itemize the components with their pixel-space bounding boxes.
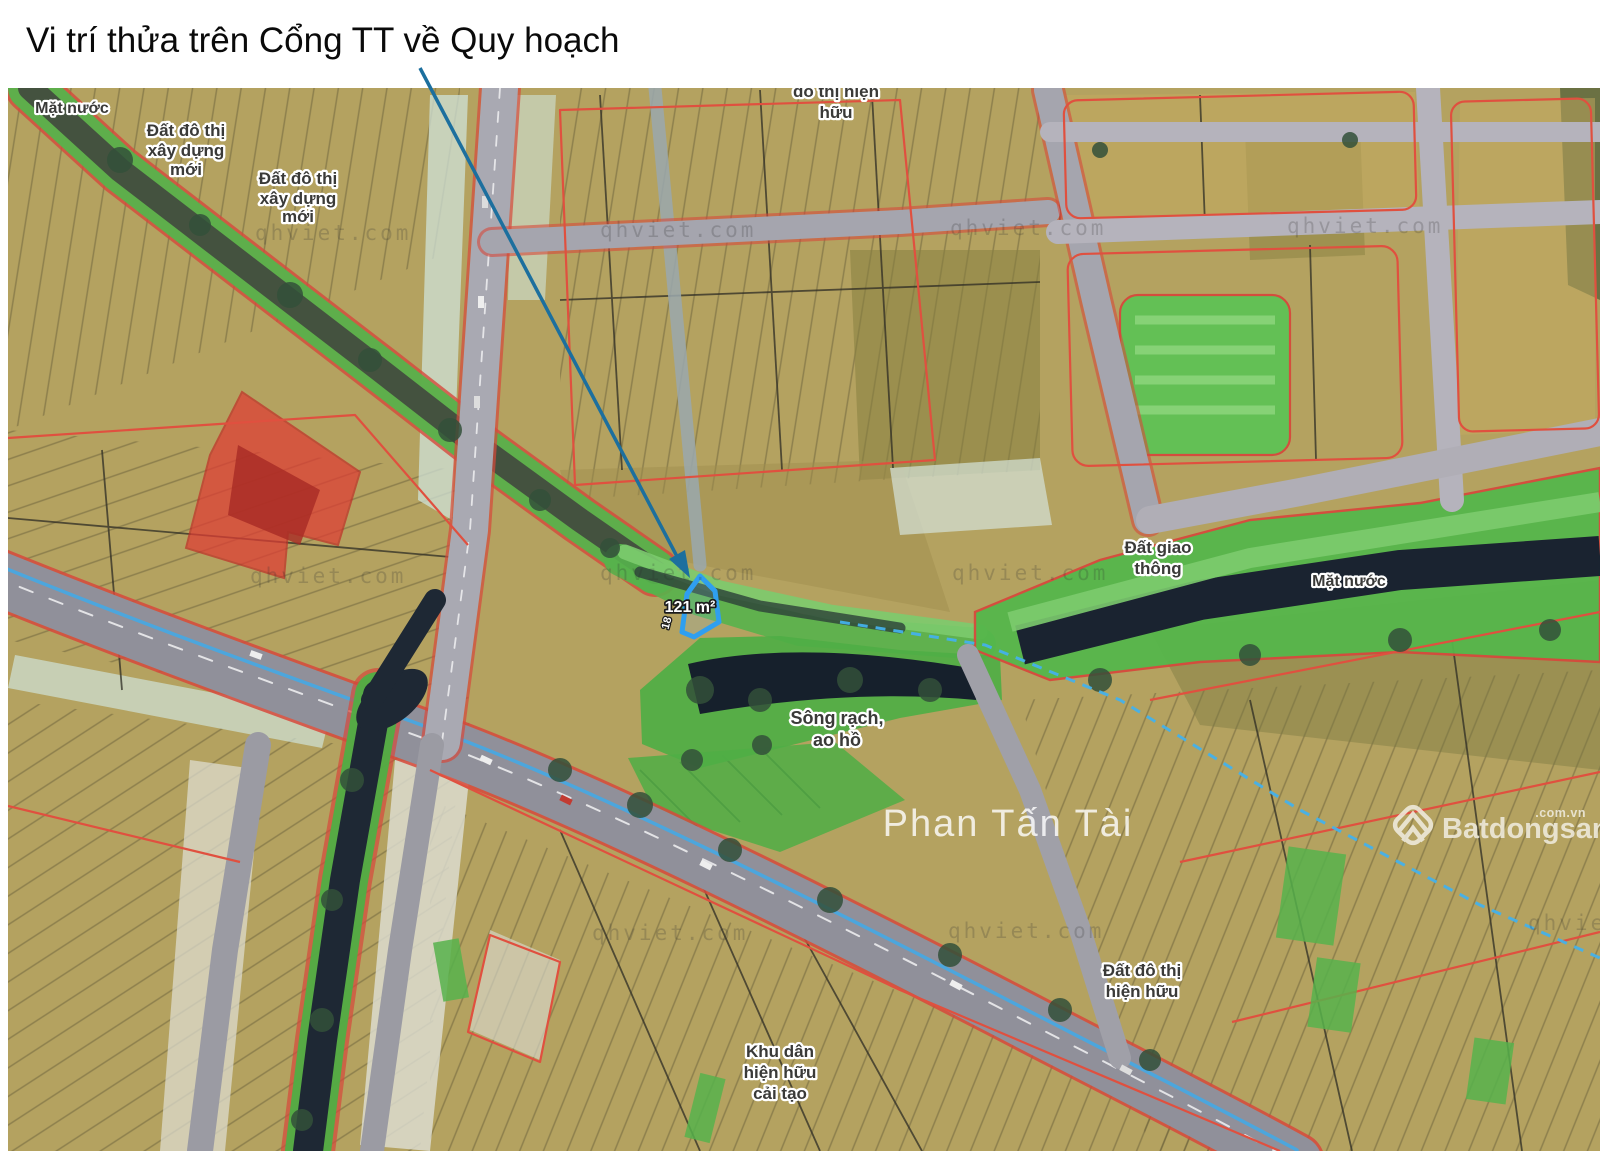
svg-text:qhviet.com: qhviet.com [1528, 911, 1600, 935]
brand-suffix: .com.vn [1535, 806, 1586, 820]
planning-map-screenshot: Vi trí thửa trên Cổng TT về Quy hoạch [0, 0, 1600, 1151]
label-mat-nuoc-right: Mặt nước [1312, 573, 1386, 590]
street-name-label: Phan Tấn Tài [883, 803, 1134, 845]
svg-text:qhviet.com: qhviet.com [250, 564, 406, 588]
park-block [1120, 295, 1290, 455]
svg-text:Đất đô thị: Đất đô thị [1103, 961, 1181, 980]
svg-text:xây dựng: xây dựng [148, 141, 225, 160]
svg-text:qhviet.com: qhviet.com [948, 919, 1104, 943]
svg-text:Khu dân: Khu dân [746, 1042, 814, 1061]
svg-text:mới: mới [170, 160, 202, 179]
page-title: Vi trí thửa trên Cổng TT về Quy hoạch [26, 21, 619, 60]
map-canvas[interactable]: 121 m² 18 Mặt nước Đất đô thị xây dựng m… [0, 82, 1600, 1151]
svg-text:qhviet.com: qhviet.com [952, 561, 1108, 585]
svg-text:hiện hữu: hiện hữu [1106, 982, 1179, 1001]
svg-text:qhviet.com: qhviet.com [255, 221, 411, 245]
svg-text:cải tạo: cải tạo [753, 1084, 807, 1103]
svg-text:xây dựng: xây dựng [260, 189, 337, 208]
svg-text:Đất đô thị: Đất đô thị [147, 121, 225, 140]
label-khu-dan: Khu dân hiện hữu cải tạo [744, 1042, 817, 1103]
svg-text:Đất đô thị: Đất đô thị [259, 169, 337, 188]
svg-text:qhviet.com: qhviet.com [1287, 214, 1443, 238]
svg-text:qhviet.com: qhviet.com [592, 921, 748, 945]
svg-text:qhviet.com: qhviet.com [600, 218, 756, 242]
svg-text:thông: thông [1134, 559, 1181, 578]
svg-text:Đất giao: Đất giao [1124, 538, 1191, 557]
svg-text:hiện hữu: hiện hữu [744, 1063, 817, 1082]
label-mat-nuoc-top: Mặt nước [35, 100, 109, 117]
svg-text:ao hồ: ao hồ [813, 730, 861, 750]
svg-text:hữu: hữu [819, 103, 852, 122]
svg-text:Sông rạch,: Sông rạch, [790, 708, 883, 728]
parcel-area-label: 121 m² [665, 599, 716, 616]
svg-text:qhviet.com: qhviet.com [950, 216, 1106, 240]
